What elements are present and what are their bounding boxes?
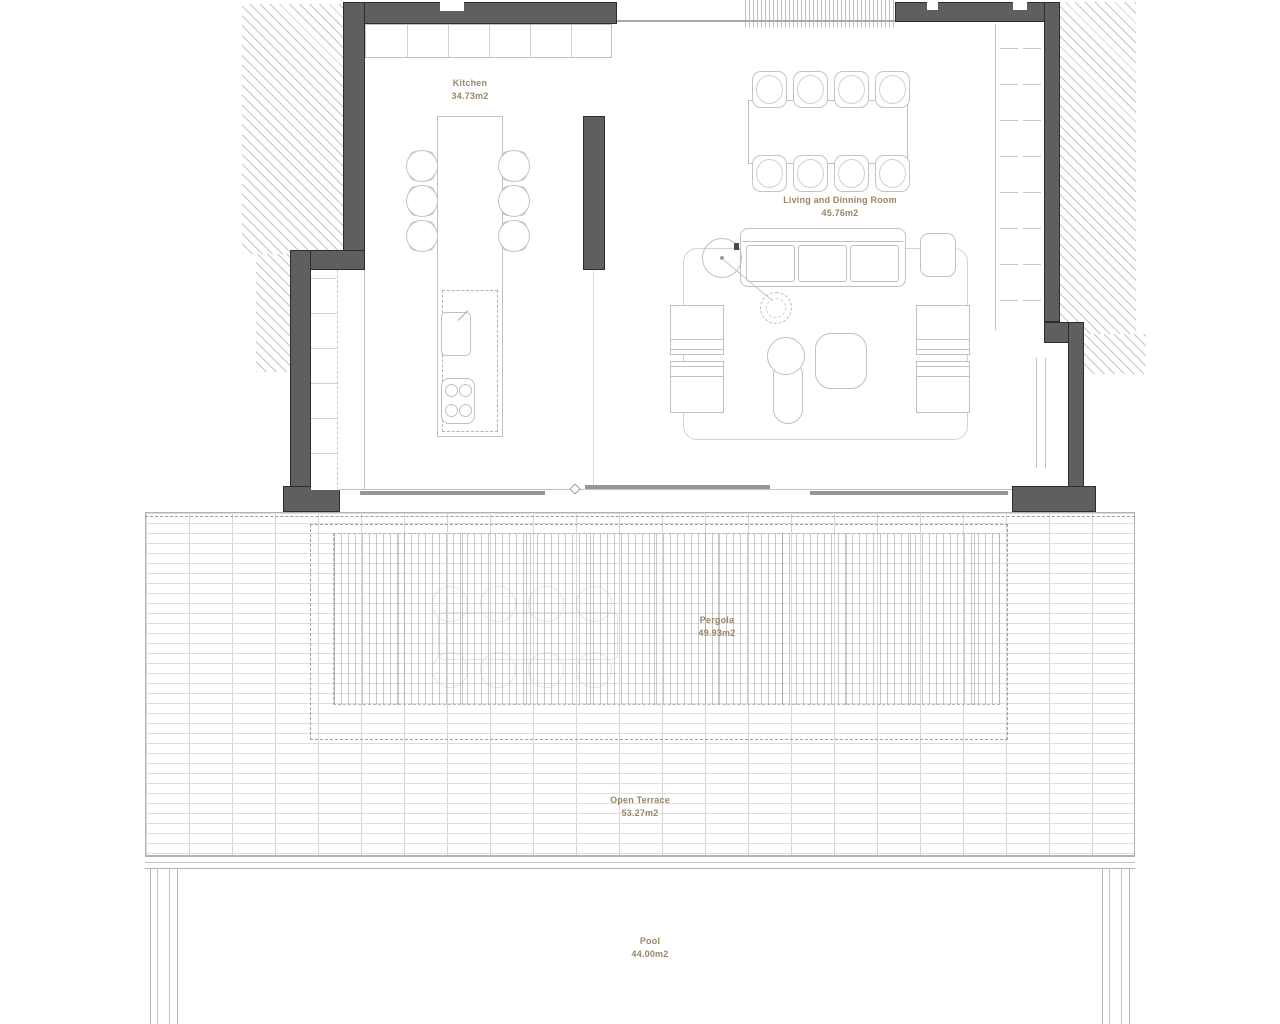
wall-partition (583, 116, 605, 270)
outdoor-chair (528, 652, 564, 688)
open-terrace-area: 53.27m2 (610, 807, 670, 820)
wall-kitchen-top (343, 2, 617, 24)
living-room-label: Living and Dinning Room 45.76m2 (783, 194, 897, 220)
kitchen-area: 34.73m2 (452, 90, 489, 103)
closet-dashed-line (337, 270, 338, 490)
shelf-ticks (1000, 48, 1018, 328)
niche-window (1036, 358, 1046, 468)
burner-icon (445, 384, 458, 397)
pool-label: Pool 44.00m2 (632, 935, 669, 961)
sofa-cushion (850, 245, 899, 282)
dining-chair (875, 71, 910, 108)
pool-area: 44.00m2 (632, 948, 669, 961)
counter-divider (489, 25, 490, 57)
outdoor-chair (576, 652, 612, 688)
wall-living-top (895, 2, 1060, 22)
sofa-back-line (743, 241, 903, 242)
burner-icon (459, 384, 472, 397)
plant-inner (766, 298, 786, 318)
pool-wall-left-inner (157, 869, 170, 1024)
outdoor-chair (432, 652, 468, 688)
open-terrace-label: Open Terrace 53.27m2 (610, 794, 670, 820)
coffee-table-round (767, 337, 805, 375)
shelf-ticks (1023, 48, 1041, 328)
pool-wall-right-inner (1109, 869, 1122, 1024)
counter-divider (530, 25, 531, 57)
counter-divider (407, 25, 408, 57)
roof-beam-line (617, 20, 895, 22)
glass-door-track (340, 489, 1012, 490)
lamp-mark (734, 243, 739, 250)
sliding-door-panel (585, 485, 770, 489)
counter-divider (448, 25, 449, 57)
sofa-cushion (798, 245, 847, 282)
wall-left-lower (290, 250, 311, 490)
kitchen-sink (441, 312, 471, 356)
sofa-cushion (746, 245, 795, 282)
kitchen-label: Kitchen 34.73m2 (452, 77, 489, 103)
wall-notch (927, 2, 938, 10)
exterior-hatch-top-center (745, 0, 895, 27)
side-table (920, 233, 956, 277)
pergola-area: 49.93m2 (699, 627, 736, 640)
glass-partition-line (593, 270, 594, 488)
exterior-hatch-left-lower (256, 254, 290, 372)
sofa (740, 228, 906, 287)
wall-notch (440, 2, 464, 11)
exterior-hatch-left-upper (242, 4, 344, 254)
dining-chair (793, 155, 828, 192)
right-niche (1012, 343, 1068, 486)
kitchen-counter (365, 24, 612, 58)
wall-notch (1013, 2, 1027, 10)
pergola-label: Pergola 49.93m2 (699, 614, 736, 640)
sliding-door-panel (360, 491, 545, 495)
wall-foot-right (1012, 486, 1096, 512)
burner-icon (459, 404, 472, 417)
plant (760, 292, 792, 324)
sliding-door-panel (810, 491, 1008, 495)
terrace-edge-dashes (145, 516, 1135, 517)
living-room-name: Living and Dinning Room (783, 194, 897, 207)
kitchen-name: Kitchen (452, 77, 489, 90)
dining-chair (752, 155, 787, 192)
pergola-name: Pergola (699, 614, 736, 627)
outdoor-chair (480, 652, 516, 688)
right-shelving (995, 24, 1044, 330)
armchair (916, 361, 970, 413)
dining-chair (752, 71, 787, 108)
dining-chair (834, 71, 869, 108)
cooktop (441, 378, 475, 424)
living-room-area: 45.76m2 (783, 207, 897, 220)
floor-plan: Kitchen 34.73m2 Living and Dinning Room … (0, 0, 1280, 1024)
wall-kitchen-left (343, 2, 365, 254)
coffee-table-square (815, 333, 867, 389)
dining-chair (875, 155, 910, 192)
open-terrace-name: Open Terrace (610, 794, 670, 807)
burner-icon (445, 404, 458, 417)
exterior-hatch-right-upper (1060, 2, 1136, 334)
exterior-hatch-right-lower (1084, 334, 1146, 374)
counter-divider (571, 25, 572, 57)
wall-right-lower (1068, 322, 1084, 492)
left-closet (311, 270, 365, 490)
pergola-furniture (432, 578, 632, 696)
dining-chair (834, 155, 869, 192)
pool-name: Pool (632, 935, 669, 948)
armchair (670, 305, 724, 355)
door-joint-marker (569, 483, 580, 494)
armchair (916, 305, 970, 355)
pool-coping-band (145, 856, 1135, 869)
closet-ticks (311, 278, 337, 483)
wall-right-upper (1044, 2, 1060, 322)
dining-chair (793, 71, 828, 108)
armchair (670, 361, 724, 413)
